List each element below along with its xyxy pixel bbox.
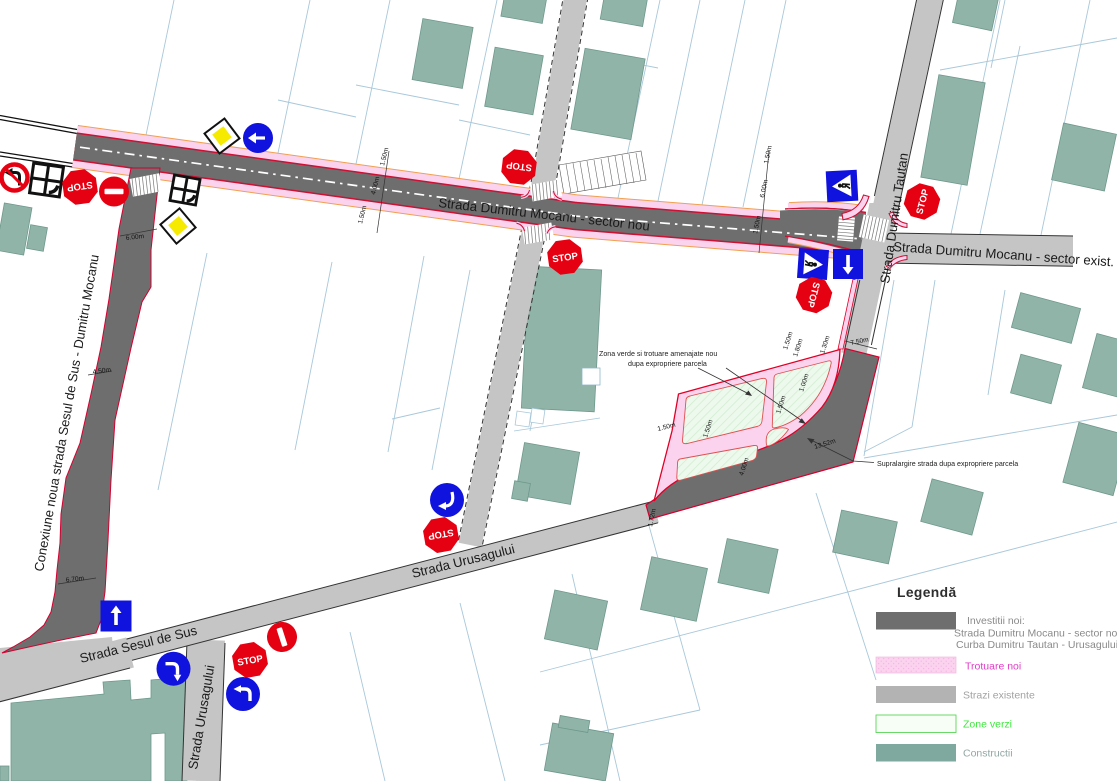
svg-text:Curba Dumitru Tautan - Urusagu: Curba Dumitru Tautan - Urusagului (956, 639, 1117, 651)
svg-text:Zona verde si trotuare amenaja: Zona verde si trotuare amenajate nou (599, 350, 717, 358)
svg-text:Trotuare noi: Trotuare noi (965, 661, 1021, 673)
svg-text:Legendă: Legendă (897, 585, 957, 600)
svg-text:Supralargire strada dupa expro: Supralargire strada dupa expropriere par… (877, 460, 1018, 468)
svg-text:Strazi existente: Strazi existente (963, 690, 1035, 702)
svg-text:Zone verzi: Zone verzi (963, 719, 1012, 731)
svg-text:Constructii: Constructii (963, 748, 1013, 760)
svg-text:Strada Dumitru Mocanu - sector: Strada Dumitru Mocanu - sector nou (954, 628, 1117, 640)
svg-text:dupa expropriere parcela: dupa expropriere parcela (628, 360, 707, 368)
svg-text:Investitii noi:: Investitii noi: (967, 615, 1025, 627)
